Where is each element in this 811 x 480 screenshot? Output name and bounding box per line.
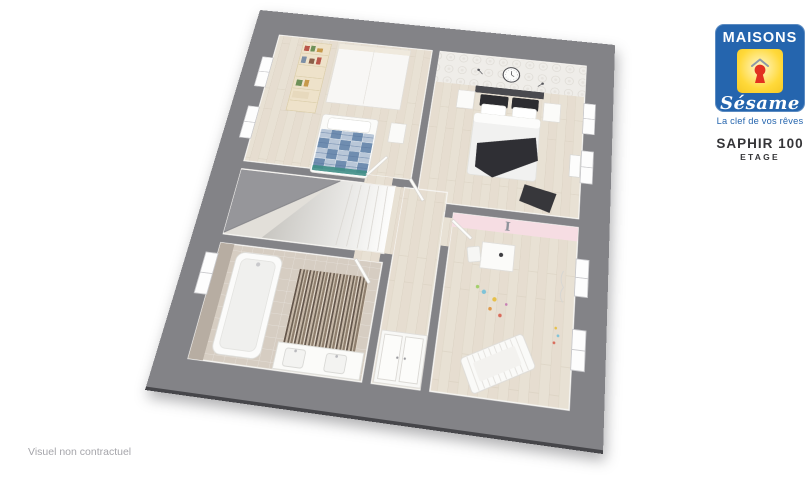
floorplan-svg: I <box>145 10 615 454</box>
window <box>574 259 589 298</box>
window <box>571 329 586 371</box>
side-table <box>388 123 407 144</box>
brand-name: MAISONS <box>715 24 805 46</box>
page: I <box>0 0 811 480</box>
logo-yellow-square <box>737 49 783 93</box>
floorplan-slab: I <box>145 10 615 454</box>
linen-closet <box>373 330 427 388</box>
brand-tagline: La clef de vos rêves <box>706 116 811 126</box>
keyhole-icon <box>747 57 773 85</box>
page-title: SAPHIR 100 <box>706 136 811 151</box>
wardrobe <box>326 44 411 110</box>
picture-frame <box>569 155 581 178</box>
brand-script: Sésame <box>715 93 805 114</box>
floor-label: ETAGE <box>706 152 811 162</box>
hallway <box>373 330 427 388</box>
nightstand <box>543 103 561 123</box>
disclaimer-note: Visuel non contractuel <box>28 446 131 458</box>
desk-chair <box>467 246 481 262</box>
maisons-sesame-logo: MAISONS Sésame <box>715 24 805 112</box>
window <box>580 151 593 184</box>
brand-column: MAISONS Sésame La clef de vos rêves SAPH… <box>706 24 811 162</box>
window <box>583 104 596 135</box>
nightstand <box>456 90 475 109</box>
